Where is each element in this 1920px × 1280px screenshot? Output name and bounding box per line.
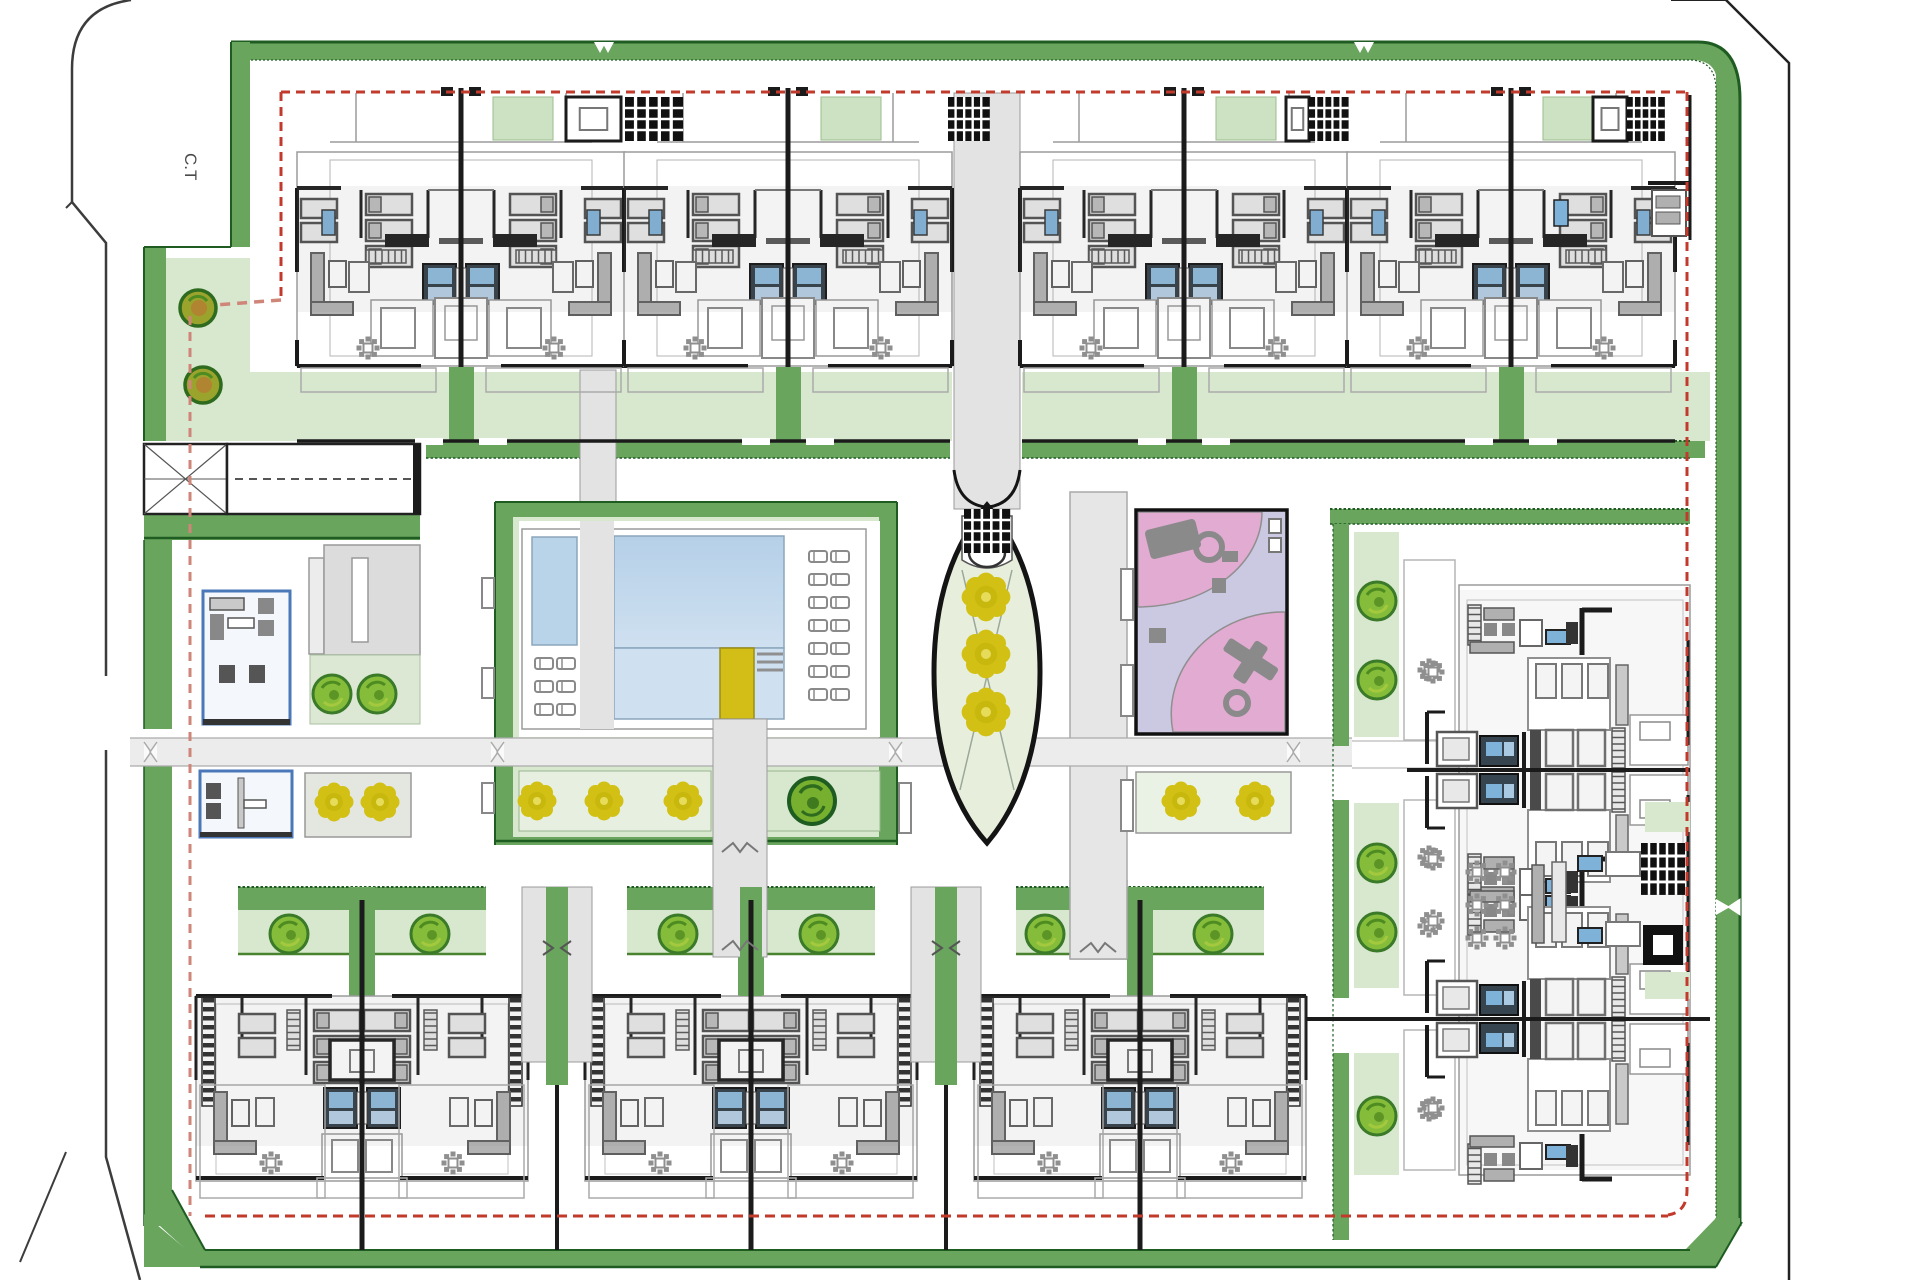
svg-text:C.T: C.T xyxy=(181,153,200,180)
